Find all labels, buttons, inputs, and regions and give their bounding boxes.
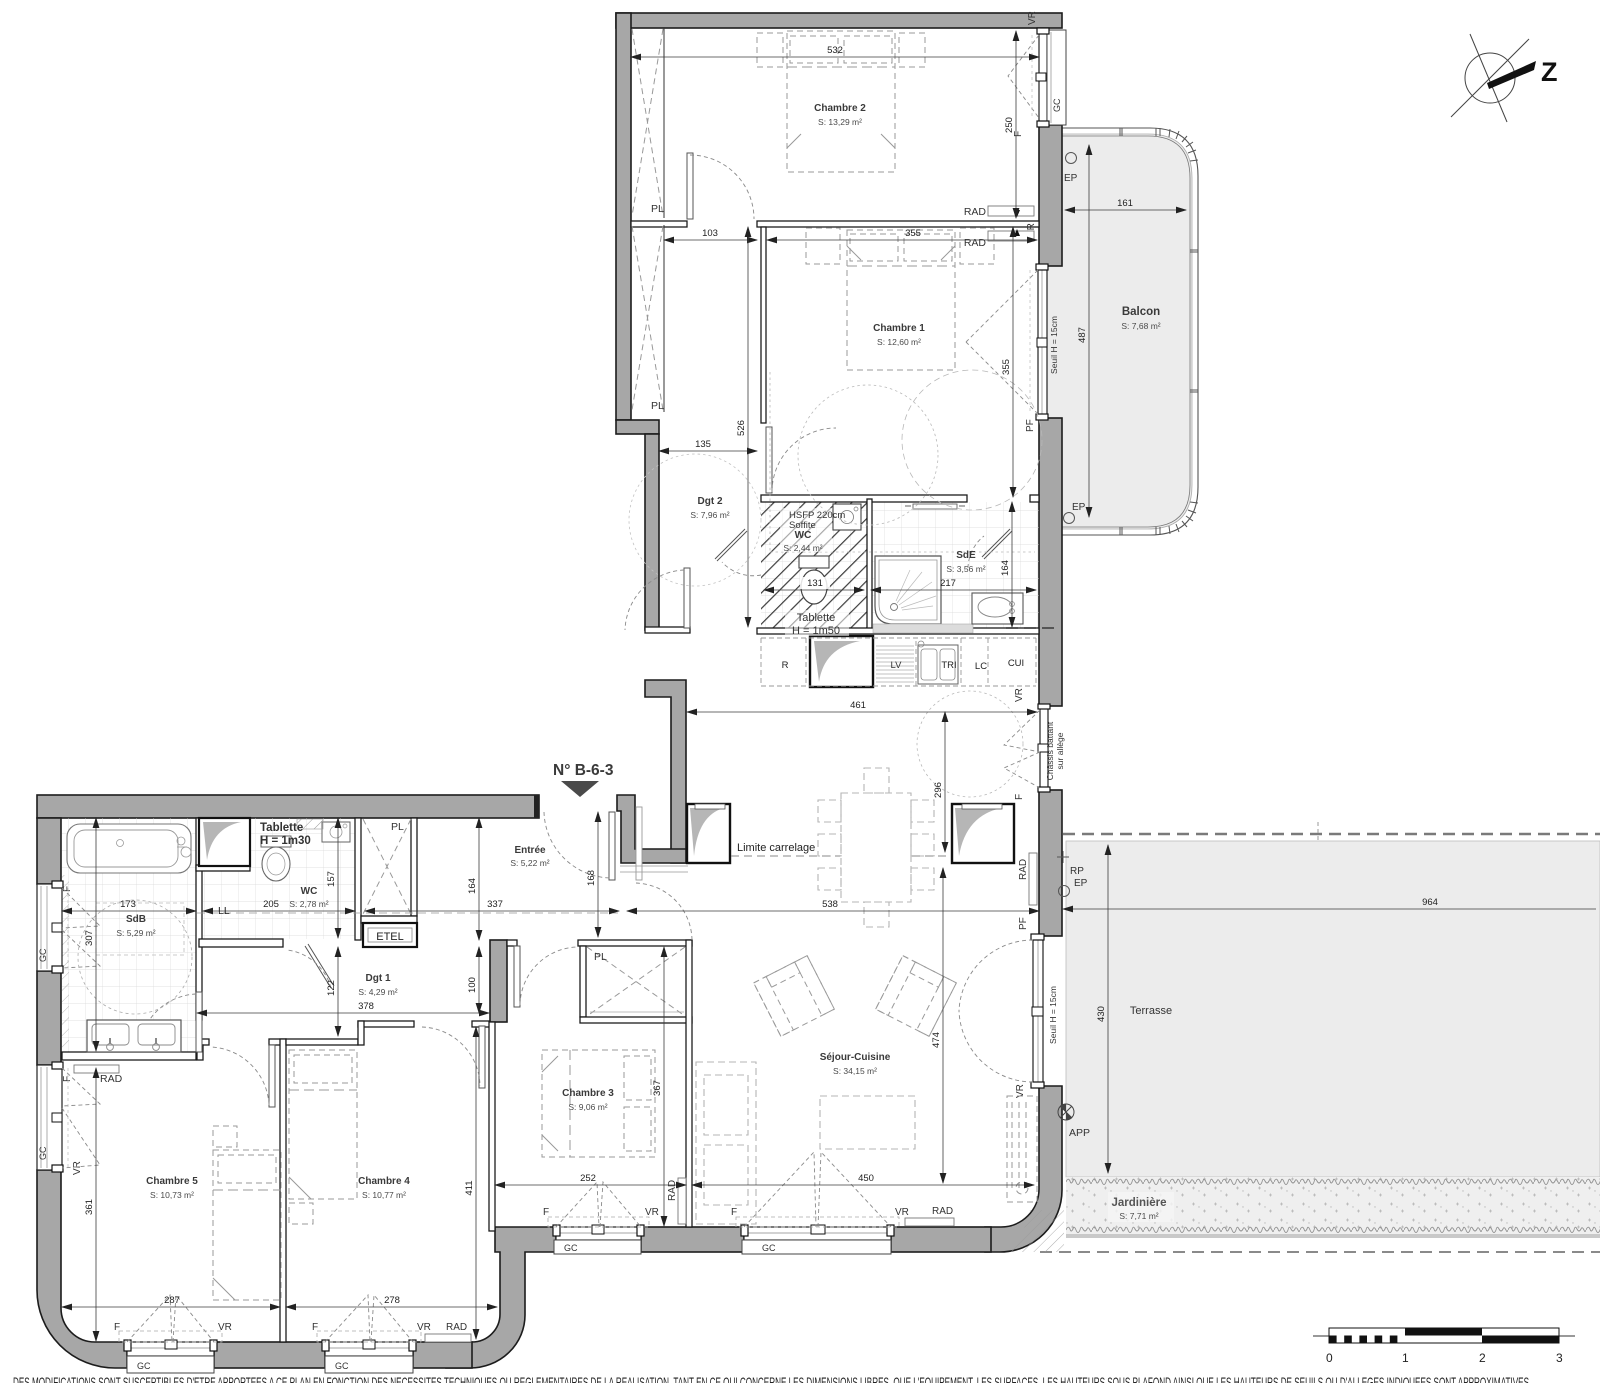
svg-text:532: 532 xyxy=(827,45,843,56)
svg-text:EP: EP xyxy=(1064,173,1078,184)
svg-text:EP: EP xyxy=(1072,502,1086,513)
svg-text:VR: VR xyxy=(72,1161,83,1175)
svg-text:EP: EP xyxy=(1074,878,1088,889)
svg-text:Terrasse: Terrasse xyxy=(1130,1005,1172,1017)
svg-text:RAD: RAD xyxy=(1018,859,1029,880)
svg-text:H = 1m50: H = 1m50 xyxy=(792,625,840,637)
svg-text:PF: PF xyxy=(1018,917,1029,930)
svg-text:3: 3 xyxy=(1556,1351,1563,1365)
svg-text:RAD: RAD xyxy=(100,1073,123,1085)
svg-text:PF: PF xyxy=(1025,419,1036,432)
svg-text:157: 157 xyxy=(326,871,337,887)
svg-text:R: R xyxy=(782,660,789,671)
svg-text:287: 287 xyxy=(164,1295,180,1306)
svg-text:S: 5,29 m²: S: 5,29 m² xyxy=(116,928,155,938)
svg-text:164: 164 xyxy=(1000,560,1011,576)
svg-text:411: 411 xyxy=(464,1180,475,1195)
svg-text:SdB: SdB xyxy=(126,914,146,925)
svg-text:GC: GC xyxy=(762,1243,776,1253)
svg-text:252: 252 xyxy=(580,1173,596,1184)
svg-text:526: 526 xyxy=(736,420,747,436)
svg-text:H = 1m30: H = 1m30 xyxy=(260,835,311,847)
svg-text:487: 487 xyxy=(1077,327,1088,343)
svg-text:LL: LL xyxy=(218,905,230,917)
svg-text:307: 307 xyxy=(84,930,95,946)
svg-text:Tablette: Tablette xyxy=(260,822,303,834)
svg-text:122: 122 xyxy=(326,980,337,996)
svg-text:0: 0 xyxy=(1326,1351,1333,1365)
svg-text:Z: Z xyxy=(1541,57,1558,87)
svg-text:F: F xyxy=(312,1322,318,1333)
svg-text:F: F xyxy=(543,1207,549,1218)
svg-text:S: 10,73 m²: S: 10,73 m² xyxy=(150,1190,194,1200)
svg-text:Tablette: Tablette xyxy=(797,612,836,624)
svg-text:CUI: CUI xyxy=(1008,658,1024,669)
svg-text:PL: PL xyxy=(651,203,664,215)
svg-text:450: 450 xyxy=(858,1173,874,1184)
svg-text:Limite carrelage: Limite carrelage xyxy=(737,842,815,854)
svg-text:Chambre 2: Chambre 2 xyxy=(814,103,866,114)
svg-text:135: 135 xyxy=(695,439,711,450)
svg-text:361: 361 xyxy=(84,1199,95,1215)
svg-text:964: 964 xyxy=(1422,897,1438,908)
svg-text:LV: LV xyxy=(891,660,903,671)
svg-text:100: 100 xyxy=(467,977,478,993)
svg-text:Seuil H = 15cm: Seuil H = 15cm xyxy=(1049,316,1059,374)
svg-text:Châssis battant: Châssis battant xyxy=(1045,721,1055,780)
svg-text:161: 161 xyxy=(1117,198,1133,209)
svg-text:WC: WC xyxy=(795,530,812,541)
svg-text:VR: VR xyxy=(1027,11,1038,25)
svg-text:SdE: SdE xyxy=(956,550,976,561)
svg-text:N° B-6-3: N° B-6-3 xyxy=(553,762,614,779)
svg-text:F: F xyxy=(62,886,73,892)
svg-text:296: 296 xyxy=(933,782,944,798)
svg-text:1: 1 xyxy=(1402,1351,1409,1365)
svg-text:S: 10,77 m²: S: 10,77 m² xyxy=(362,1190,406,1200)
svg-text:S: 4,29 m²: S: 4,29 m² xyxy=(358,987,397,997)
svg-text:Chambre 1: Chambre 1 xyxy=(873,323,925,334)
svg-text:217: 217 xyxy=(940,578,956,589)
svg-text:TRI: TRI xyxy=(941,660,956,671)
svg-text:RAD: RAD xyxy=(446,1322,467,1333)
svg-text:ETEL: ETEL xyxy=(376,931,404,943)
svg-text:F: F xyxy=(62,1076,73,1082)
svg-text:S: 34,15 m²: S: 34,15 m² xyxy=(833,1066,877,1076)
svg-text:Dgt 1: Dgt 1 xyxy=(366,973,391,984)
svg-text:VR: VR xyxy=(895,1207,909,1218)
svg-text:sur allège: sur allège xyxy=(1055,732,1065,769)
svg-text:Chambre 5: Chambre 5 xyxy=(146,1176,198,1187)
svg-text:Chambre 4: Chambre 4 xyxy=(358,1176,410,1187)
svg-text:S: 12,60 m²: S: 12,60 m² xyxy=(877,337,921,347)
svg-text:RP: RP xyxy=(1070,866,1084,877)
svg-text:S: 5,22 m²: S: 5,22 m² xyxy=(510,858,549,868)
svg-text:PL: PL xyxy=(594,951,607,963)
svg-text:VR: VR xyxy=(1014,688,1025,702)
svg-text:F: F xyxy=(114,1322,120,1333)
svg-text:S: 13,29 m²: S: 13,29 m² xyxy=(818,117,862,127)
svg-text:474: 474 xyxy=(931,1032,942,1048)
svg-text:Dgt 2: Dgt 2 xyxy=(698,496,723,507)
svg-text:378: 378 xyxy=(358,1001,374,1012)
svg-text:GC: GC xyxy=(564,1243,578,1253)
svg-text:131: 131 xyxy=(807,578,823,589)
svg-text:WC: WC xyxy=(301,886,318,897)
svg-text:GC: GC xyxy=(335,1361,349,1371)
svg-text:173: 173 xyxy=(120,899,136,910)
svg-text:F: F xyxy=(731,1207,737,1218)
svg-text:GC: GC xyxy=(38,1146,48,1160)
svg-text:355: 355 xyxy=(905,228,921,239)
svg-text:S: 7,71 m²: S: 7,71 m² xyxy=(1119,1211,1158,1221)
svg-text:430: 430 xyxy=(1096,1006,1107,1022)
svg-text:103: 103 xyxy=(702,228,718,239)
svg-text:F: F xyxy=(1014,794,1025,800)
svg-text:VR: VR xyxy=(218,1322,232,1333)
svg-text:VR: VR xyxy=(417,1322,431,1333)
svg-text:Séjour-Cuisine: Séjour-Cuisine xyxy=(820,1052,891,1063)
svg-text:Chambre 3: Chambre 3 xyxy=(562,1088,614,1099)
svg-text:RAD: RAD xyxy=(667,1180,678,1201)
svg-text:Entrée: Entrée xyxy=(514,845,546,856)
svg-text:S: 3,56 m²: S: 3,56 m² xyxy=(946,564,985,574)
svg-text:461: 461 xyxy=(850,700,866,711)
svg-text:VR: VR xyxy=(645,1207,659,1218)
svg-text:PL: PL xyxy=(651,400,664,412)
svg-text:278: 278 xyxy=(384,1295,400,1306)
svg-text:S: 2,44 m²: S: 2,44 m² xyxy=(783,543,822,553)
svg-text:LC: LC xyxy=(975,661,987,672)
svg-text:205: 205 xyxy=(263,899,279,910)
svg-text:367: 367 xyxy=(652,1080,663,1096)
svg-text:Balcon: Balcon xyxy=(1122,306,1160,318)
svg-text:GC: GC xyxy=(1052,98,1062,112)
svg-text:2: 2 xyxy=(1479,1351,1486,1365)
svg-text:S: 9,06 m²: S: 9,06 m² xyxy=(568,1102,607,1112)
svg-text:S: 7,68 m²: S: 7,68 m² xyxy=(1121,321,1160,331)
svg-text:PL: PL xyxy=(391,821,404,833)
svg-text:164: 164 xyxy=(467,878,478,894)
svg-text:DES MODIFICATIONS SONT SUSCEPT: DES MODIFICATIONS SONT SUSCEPTIBLES D'ET… xyxy=(13,1374,1529,1383)
svg-text:250: 250 xyxy=(1004,117,1015,133)
svg-text:355: 355 xyxy=(1001,359,1012,375)
svg-text:APP: APP xyxy=(1069,1127,1090,1139)
svg-text:RAD: RAD xyxy=(964,206,987,218)
svg-text:GC: GC xyxy=(137,1361,151,1371)
svg-text:168: 168 xyxy=(586,870,597,886)
svg-text:RAD: RAD xyxy=(932,1206,953,1217)
svg-text:S: 2,78 m²: S: 2,78 m² xyxy=(289,899,328,909)
svg-text:337: 337 xyxy=(487,899,503,910)
svg-text:S: 7,96 m²: S: 7,96 m² xyxy=(690,510,729,520)
svg-text:GC: GC xyxy=(38,948,48,962)
svg-text:RAD: RAD xyxy=(964,237,987,249)
svg-text:538: 538 xyxy=(822,899,838,910)
svg-text:Seuil H = 15cm: Seuil H = 15cm xyxy=(1048,986,1058,1044)
svg-text:Jardinière: Jardinière xyxy=(1112,1197,1167,1209)
